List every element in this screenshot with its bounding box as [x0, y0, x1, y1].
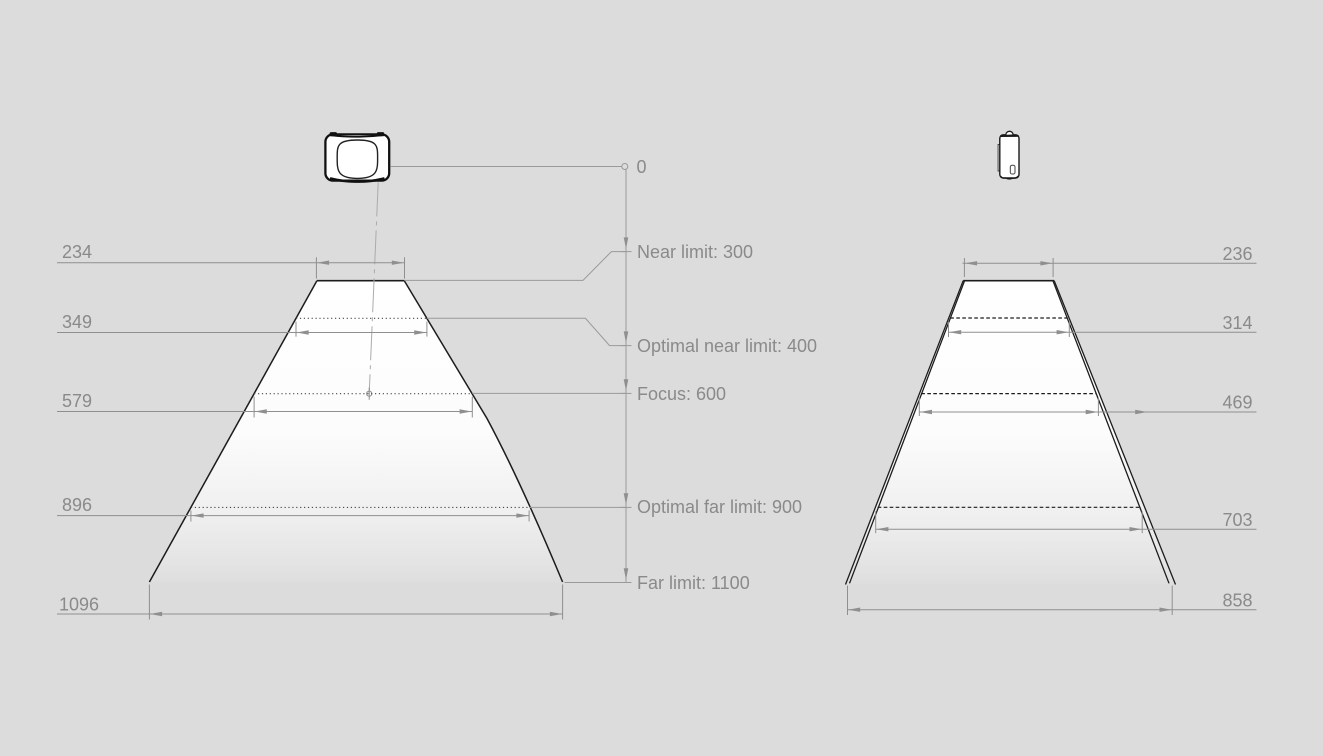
svg-text:236: 236 — [1223, 244, 1253, 264]
svg-text:896: 896 — [62, 495, 92, 515]
svg-text:Far limit: 1100: Far limit: 1100 — [637, 573, 750, 593]
svg-text:234: 234 — [62, 242, 92, 262]
svg-text:469: 469 — [1223, 393, 1253, 413]
svg-text:349: 349 — [62, 312, 92, 332]
svg-text:703: 703 — [1223, 510, 1253, 530]
svg-text:1096: 1096 — [59, 595, 99, 615]
svg-text:0: 0 — [637, 157, 647, 177]
svg-text:858: 858 — [1223, 590, 1253, 610]
svg-text:314: 314 — [1223, 313, 1253, 333]
svg-text:Near limit: 300: Near limit: 300 — [637, 242, 753, 262]
svg-text:Focus: 600: Focus: 600 — [637, 384, 726, 404]
svg-text:579: 579 — [62, 391, 92, 411]
svg-text:Optimal far limit: 900: Optimal far limit: 900 — [637, 497, 802, 517]
svg-text:Optimal near limit: 400: Optimal near limit: 400 — [637, 336, 817, 356]
